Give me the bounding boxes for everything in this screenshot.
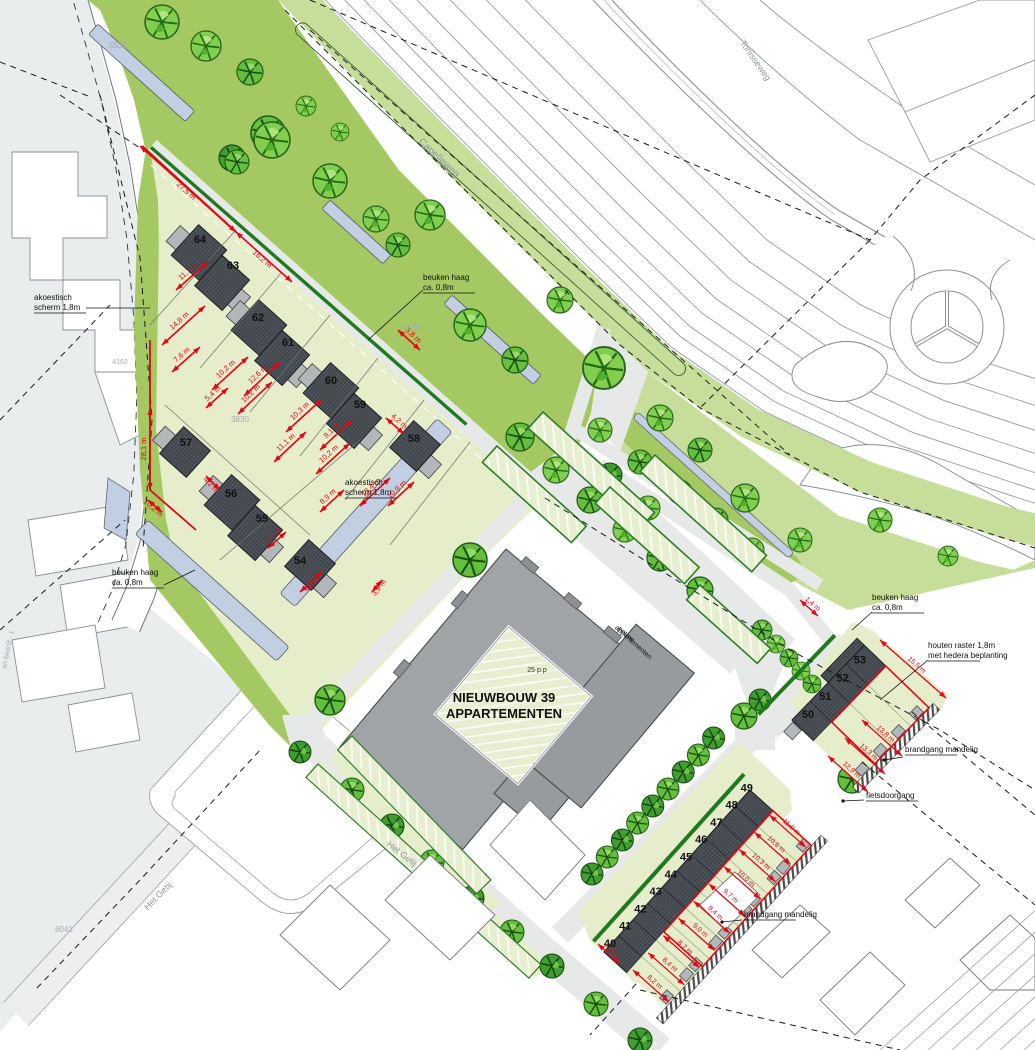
svg-text:52: 52 [836, 673, 848, 685]
svg-text:60: 60 [325, 375, 337, 387]
svg-text:57: 57 [180, 437, 192, 449]
svg-text:beuken haag: beuken haag [872, 593, 918, 602]
svg-text:fietsdoorgang: fietsdoorgang [866, 791, 914, 800]
svg-text:akoestisch: akoestisch [345, 478, 383, 487]
svg-text:44: 44 [665, 869, 678, 881]
svg-text:45: 45 [680, 852, 692, 864]
svg-text:5537: 5537 [109, 41, 127, 50]
svg-text:50: 50 [802, 709, 814, 721]
svg-text:61: 61 [282, 337, 294, 349]
svg-text:40: 40 [604, 938, 616, 950]
svg-text:beuken haag: beuken haag [112, 568, 158, 577]
svg-text:akoestisch: akoestisch [34, 293, 72, 302]
svg-text:46: 46 [695, 834, 707, 846]
svg-text:APPARTEMENTEN: APPARTEMENTEN [446, 706, 562, 721]
svg-text:58: 58 [408, 433, 420, 445]
svg-text:houten raster 1,8m: houten raster 1,8m [928, 641, 995, 650]
svg-text:42: 42 [634, 903, 646, 915]
svg-text:49: 49 [741, 782, 753, 794]
svg-text:scherm 1,8m: scherm 1,8m [345, 488, 392, 497]
svg-text:brandgang mandelig: brandgang mandelig [905, 745, 978, 754]
svg-text:56: 56 [225, 488, 237, 500]
svg-text:scherm 1,8m: scherm 1,8m [34, 303, 81, 312]
svg-text:5538: 5538 [402, 323, 420, 332]
svg-text:beuken haag: beuken haag [423, 273, 469, 282]
svg-text:64: 64 [194, 234, 207, 246]
svg-text:ca. 0,8m: ca. 0,8m [423, 283, 454, 292]
svg-text:NIEUWBOUW 39: NIEUWBOUW 39 [453, 690, 556, 705]
svg-text:54: 54 [294, 555, 307, 567]
svg-text:59: 59 [354, 399, 366, 411]
svg-text:ca. 0,8m: ca. 0,8m [872, 603, 903, 612]
svg-text:63: 63 [227, 260, 239, 272]
svg-text:3830: 3830 [231, 415, 249, 424]
svg-text:28,1 m: 28,1 m [139, 438, 148, 461]
svg-text:41: 41 [619, 921, 631, 933]
svg-text:brandgang mandelig: brandgang mandelig [744, 910, 817, 919]
svg-text:48: 48 [725, 800, 737, 812]
svg-text:25 p.p: 25 p.p [527, 667, 547, 674]
svg-text:6041: 6041 [55, 925, 73, 934]
svg-text:51: 51 [819, 691, 831, 703]
svg-text:ca. 0,8m: ca. 0,8m [112, 578, 143, 587]
svg-text:62: 62 [252, 312, 264, 324]
svg-text:43: 43 [649, 886, 661, 898]
svg-text:53: 53 [854, 654, 866, 666]
svg-text:55: 55 [256, 513, 268, 525]
svg-text:met hedera beplanting: met hedera beplanting [928, 651, 1008, 660]
svg-text:4162: 4162 [112, 359, 128, 366]
svg-text:47: 47 [710, 817, 722, 829]
